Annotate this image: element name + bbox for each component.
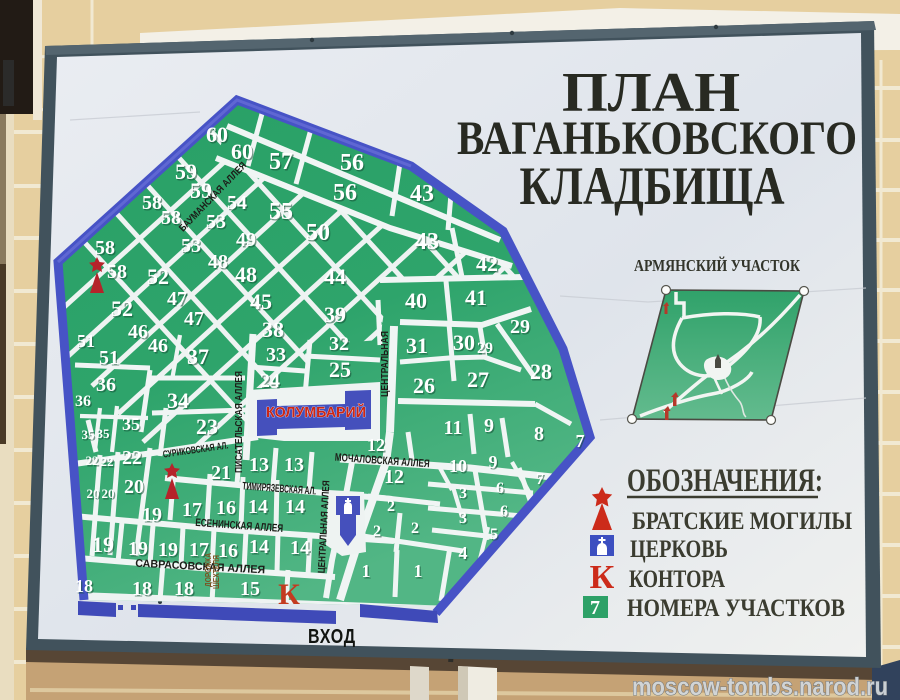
svg-text:20: 20	[102, 486, 115, 501]
svg-text:moscow-tombs.narod.ru: moscow-tombs.narod.ru	[632, 673, 888, 700]
svg-text:23: 23	[196, 414, 218, 439]
svg-text:32: 32	[329, 333, 349, 355]
svg-text:42: 42	[476, 251, 498, 276]
svg-text:БРАТСКИЕ МОГИЛЫ: БРАТСКИЕ МОГИЛЫ	[632, 508, 852, 535]
svg-text:10: 10	[449, 456, 467, 476]
svg-text:29: 29	[510, 316, 530, 338]
svg-text:12: 12	[384, 466, 404, 488]
svg-text:52: 52	[147, 264, 169, 289]
svg-text:53: 53	[181, 235, 201, 257]
svg-text:53: 53	[206, 211, 226, 233]
svg-text:33: 33	[266, 344, 286, 366]
svg-text:48: 48	[208, 251, 228, 273]
svg-text:5: 5	[490, 526, 498, 543]
svg-text:22: 22	[122, 447, 142, 469]
svg-text:60: 60	[231, 139, 253, 164]
svg-text:6: 6	[500, 503, 508, 520]
svg-text:36: 36	[96, 374, 116, 396]
svg-text:8: 8	[534, 423, 544, 445]
svg-text:43: 43	[410, 181, 434, 207]
svg-text:1: 1	[414, 561, 423, 581]
svg-text:21: 21	[211, 462, 231, 484]
svg-text:7: 7	[536, 471, 544, 488]
svg-text:КОЛУМБАРИЙ: КОЛУМБАРИЙ	[266, 403, 366, 421]
svg-text:41: 41	[465, 285, 487, 310]
svg-text:14: 14	[249, 536, 269, 558]
svg-text:46: 46	[148, 335, 168, 357]
svg-text:51: 51	[77, 331, 95, 351]
svg-text:15: 15	[240, 578, 260, 600]
svg-text:45: 45	[250, 289, 272, 314]
svg-text:КОНТОРА: КОНТОРА	[629, 566, 725, 593]
svg-text:54: 54	[227, 192, 247, 214]
svg-text:4: 4	[459, 543, 468, 563]
svg-text:44: 44	[324, 264, 346, 289]
svg-text:2: 2	[373, 523, 381, 540]
svg-text:9: 9	[484, 415, 494, 437]
svg-text:35: 35	[82, 427, 96, 442]
svg-text:34: 34	[167, 388, 189, 413]
svg-text:50: 50	[306, 220, 330, 246]
svg-text:3: 3	[459, 485, 467, 502]
svg-text:20: 20	[87, 486, 100, 501]
svg-text:14: 14	[290, 537, 310, 559]
svg-text:35: 35	[97, 426, 111, 441]
svg-text:14: 14	[285, 496, 305, 518]
svg-text:К: К	[278, 578, 300, 611]
svg-text:7: 7	[576, 431, 585, 451]
svg-text:52: 52	[111, 296, 133, 321]
svg-text:40: 40	[405, 288, 427, 313]
svg-text:19: 19	[128, 538, 148, 560]
svg-text:47: 47	[167, 288, 187, 310]
svg-text:19: 19	[142, 504, 162, 526]
svg-text:7: 7	[590, 597, 600, 619]
svg-text:К: К	[590, 559, 615, 596]
svg-text:2: 2	[411, 520, 419, 537]
svg-text:НОМЕРА УЧАСТКОВ: НОМЕРА УЧАСТКОВ	[627, 595, 845, 622]
svg-text:43: 43	[415, 229, 439, 255]
svg-text:16: 16	[218, 540, 238, 562]
svg-text:КЛАДБИЩА: КЛАДБИЩА	[520, 156, 785, 216]
svg-text:60: 60	[206, 122, 228, 147]
svg-text:51: 51	[99, 347, 119, 369]
svg-text:47: 47	[184, 308, 204, 330]
svg-text:ПИСАТЕЛЬСКАЯ АЛЛЕЯ: ПИСАТЕЛЬСКАЯ АЛЛЕЯ	[234, 371, 245, 473]
svg-text:ЦЕНТРАЛЬНАЯ: ЦЕНТРАЛЬНАЯ	[380, 331, 391, 397]
svg-text:1: 1	[362, 561, 371, 581]
svg-text:16: 16	[216, 497, 236, 519]
svg-text:25: 25	[329, 357, 351, 382]
svg-text:11: 11	[444, 417, 463, 439]
svg-text:19: 19	[92, 532, 114, 557]
svg-text:ЦЕРКОВЬ: ЦЕРКОВЬ	[630, 536, 728, 563]
svg-text:13: 13	[284, 454, 304, 476]
svg-text:46: 46	[128, 321, 148, 343]
svg-text:19: 19	[158, 539, 178, 561]
svg-text:18: 18	[174, 578, 194, 600]
svg-text:3: 3	[459, 510, 467, 527]
svg-text:37: 37	[187, 344, 209, 369]
svg-text:ОБОЗНАЧЕНИЯ:: ОБОЗНАЧЕНИЯ:	[627, 463, 823, 499]
svg-text:2: 2	[387, 498, 395, 515]
svg-text:9: 9	[489, 452, 498, 472]
svg-text:26: 26	[413, 373, 435, 398]
svg-text:13: 13	[249, 454, 269, 476]
svg-text:14: 14	[248, 496, 268, 518]
svg-text:38: 38	[262, 317, 284, 342]
svg-text:20: 20	[124, 476, 144, 498]
svg-text:ШЕХТЕЛЯ: ШЕХТЕЛЯ	[212, 555, 221, 589]
svg-text:ВХОД: ВХОД	[308, 626, 356, 648]
svg-text:22: 22	[101, 454, 114, 469]
svg-text:36: 36	[75, 393, 91, 410]
svg-text:55: 55	[269, 199, 293, 225]
svg-text:57: 57	[269, 149, 293, 175]
svg-text:31: 31	[406, 333, 428, 358]
svg-text:18: 18	[75, 576, 93, 596]
svg-text:39: 39	[324, 302, 346, 327]
svg-text:48: 48	[235, 262, 257, 287]
svg-text:6: 6	[496, 480, 504, 497]
svg-text:28: 28	[530, 359, 552, 384]
svg-text:58: 58	[95, 237, 115, 259]
svg-text:29: 29	[477, 340, 493, 357]
svg-text:35: 35	[122, 414, 140, 434]
svg-text:49: 49	[236, 229, 256, 251]
svg-text:58: 58	[107, 261, 127, 283]
svg-text:58: 58	[142, 192, 162, 214]
svg-text:24: 24	[260, 370, 280, 392]
svg-text:56: 56	[333, 180, 357, 206]
svg-text:27: 27	[467, 367, 489, 392]
svg-text:30: 30	[453, 330, 475, 355]
svg-text:56: 56	[340, 150, 364, 176]
svg-text:22: 22	[86, 453, 99, 468]
svg-text:18: 18	[132, 578, 152, 600]
svg-text:12: 12	[367, 435, 385, 455]
svg-text:АРМЯНСКИЙ УЧАСТОК: АРМЯНСКИЙ УЧАСТОК	[634, 256, 801, 275]
